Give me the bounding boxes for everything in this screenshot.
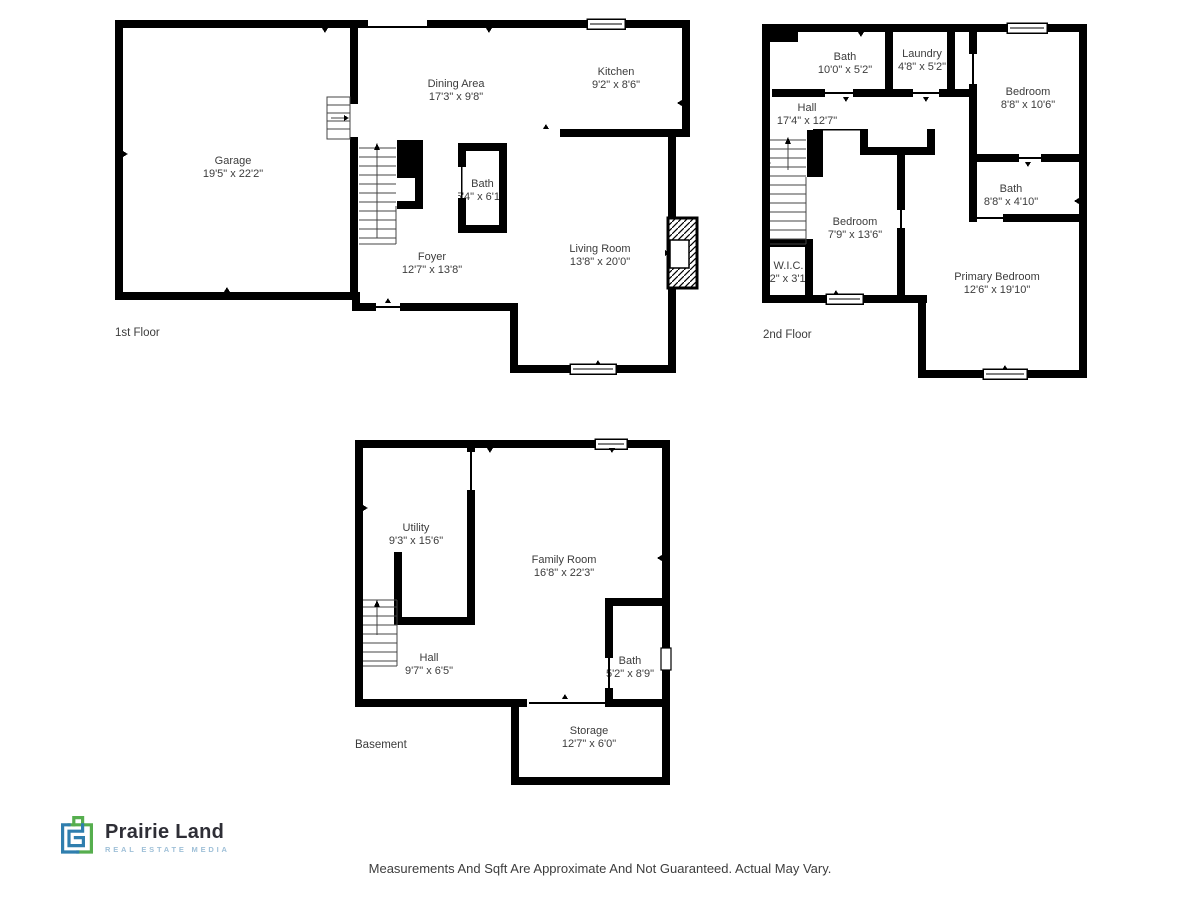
room-name: Dining Area bbox=[428, 78, 485, 91]
room-label-bedroom-tr: Bedroom 8'8" x 10'6" bbox=[1001, 86, 1055, 112]
stairs-landing bbox=[327, 97, 350, 139]
room-label-bath-2nd: Bath 10'0" x 5'2" bbox=[818, 51, 872, 77]
fireplace-symbol bbox=[668, 218, 697, 288]
floor-title-basement: Basement bbox=[355, 739, 407, 751]
room-dims: 19'5" x 22'2" bbox=[203, 168, 263, 181]
room-name: Bath bbox=[818, 51, 872, 64]
room-label-bath-1st: Bath 5'4" x 6'11" bbox=[458, 177, 507, 205]
room-name: Hall bbox=[777, 102, 837, 115]
room-label-foyer: Foyer 12'7" x 13'8" bbox=[402, 251, 462, 277]
stairs-up-arrow bbox=[374, 600, 380, 607]
disclaimer-text: Measurements And Sqft Are Approximate An… bbox=[0, 861, 1200, 876]
room-name: W.I.C. bbox=[764, 260, 813, 273]
room-dims: 13'8" x 20'0" bbox=[569, 256, 630, 269]
room-name: Laundry bbox=[898, 48, 946, 61]
room-dims: 9'3" x 15'6" bbox=[389, 535, 443, 548]
floorplan-page: Garage 19'5" x 22'2" Dining Area 17'3" x… bbox=[0, 0, 1200, 900]
floor-title-2nd: 2nd Floor bbox=[763, 329, 812, 341]
room-label-storage: Storage 12'7" x 6'0" bbox=[562, 725, 616, 751]
room-name: Hall bbox=[405, 652, 453, 665]
second-floor-plan bbox=[762, 23, 1087, 379]
room-label-wic: W.I.C. 4'2" x 3'10" bbox=[764, 259, 813, 287]
room-dims: 9'7" x 6'5" bbox=[405, 665, 453, 678]
company-logo: Prairie Land REAL ESTATE MEDIA bbox=[57, 813, 230, 859]
room-dims: 5'4" x 6'11" bbox=[458, 191, 507, 204]
room-name: Living Room bbox=[569, 243, 630, 256]
window-symbol bbox=[595, 439, 627, 449]
room-dims: 4'8" x 5'2" bbox=[898, 61, 946, 74]
room-label-hall-2nd: Hall 17'4" x 12'7" bbox=[777, 102, 837, 128]
logo-text: Prairie Land REAL ESTATE MEDIA bbox=[105, 813, 230, 854]
room-dims: 5'2" x 8'9" bbox=[606, 668, 654, 681]
room-name: Bath bbox=[984, 183, 1038, 196]
room-label-bedroom-mid: Bedroom 7'9" x 13'6" bbox=[828, 216, 882, 242]
stairs-up-arrow bbox=[785, 137, 791, 144]
floorplan-walls bbox=[0, 0, 1200, 900]
stairs-right-arrow bbox=[344, 115, 349, 121]
room-label-bath-basement: Bath 5'2" x 8'9" bbox=[606, 655, 654, 681]
logo-name: Prairie Land bbox=[105, 822, 230, 842]
room-label-utility: Utility 9'3" x 15'6" bbox=[389, 522, 443, 548]
room-name: Bedroom bbox=[828, 216, 882, 229]
room-label-kitchen: Kitchen 9'2" x 8'6" bbox=[592, 66, 640, 92]
room-name: Bath bbox=[458, 178, 507, 191]
room-name: Kitchen bbox=[592, 66, 640, 79]
room-dims: 12'7" x 13'8" bbox=[402, 264, 462, 277]
room-label-garage: Garage 19'5" x 22'2" bbox=[203, 155, 263, 181]
room-label-hall-basement: Hall 9'7" x 6'5" bbox=[405, 652, 453, 678]
room-label-living-room: Living Room 13'8" x 20'0" bbox=[569, 243, 630, 269]
room-dims: 17'4" x 12'7" bbox=[777, 115, 837, 128]
room-label-dining-area: Dining Area 17'3" x 9'8" bbox=[428, 78, 485, 104]
room-name: Garage bbox=[203, 155, 263, 168]
room-dims: 12'7" x 6'0" bbox=[562, 738, 616, 751]
room-dims: 16'8" x 22'3" bbox=[532, 567, 597, 580]
room-dims: 12'6" x 19'10" bbox=[954, 284, 1040, 297]
room-name: Utility bbox=[389, 522, 443, 535]
room-dims: 10'0" x 5'2" bbox=[818, 64, 872, 77]
room-dims: 9'2" x 8'6" bbox=[592, 79, 640, 92]
room-name: Foyer bbox=[402, 251, 462, 264]
floor-title-1st: 1st Floor bbox=[115, 327, 160, 339]
room-label-family-room: Family Room 16'8" x 22'3" bbox=[532, 554, 597, 580]
room-dims: 8'8" x 4'10" bbox=[984, 196, 1038, 209]
room-label-primary-bedroom: Primary Bedroom 12'6" x 19'10" bbox=[954, 271, 1040, 297]
room-dims: 17'3" x 9'8" bbox=[428, 91, 485, 104]
room-name: Bedroom bbox=[1001, 86, 1055, 99]
room-dims: 4'2" x 3'10" bbox=[764, 273, 813, 286]
room-name: Bath bbox=[606, 655, 654, 668]
room-label-bath-right: Bath 8'8" x 4'10" bbox=[984, 183, 1038, 209]
stairs-basement bbox=[363, 600, 397, 666]
room-dims: 7'9" x 13'6" bbox=[828, 229, 882, 242]
logo-subtitle: REAL ESTATE MEDIA bbox=[105, 845, 230, 854]
room-label-laundry: Laundry 4'8" x 5'2" bbox=[898, 48, 946, 74]
house-maze-logo-icon bbox=[57, 813, 97, 859]
basement-plan bbox=[355, 439, 671, 785]
room-name: Storage bbox=[562, 725, 616, 738]
stairs-up-arrow bbox=[374, 143, 380, 150]
stairs-2nd-floor bbox=[770, 140, 806, 244]
room-name: Family Room bbox=[532, 554, 597, 567]
room-dims: 8'8" x 10'6" bbox=[1001, 99, 1055, 112]
stairs-1st-floor bbox=[359, 148, 396, 244]
room-name: Primary Bedroom bbox=[954, 271, 1040, 284]
